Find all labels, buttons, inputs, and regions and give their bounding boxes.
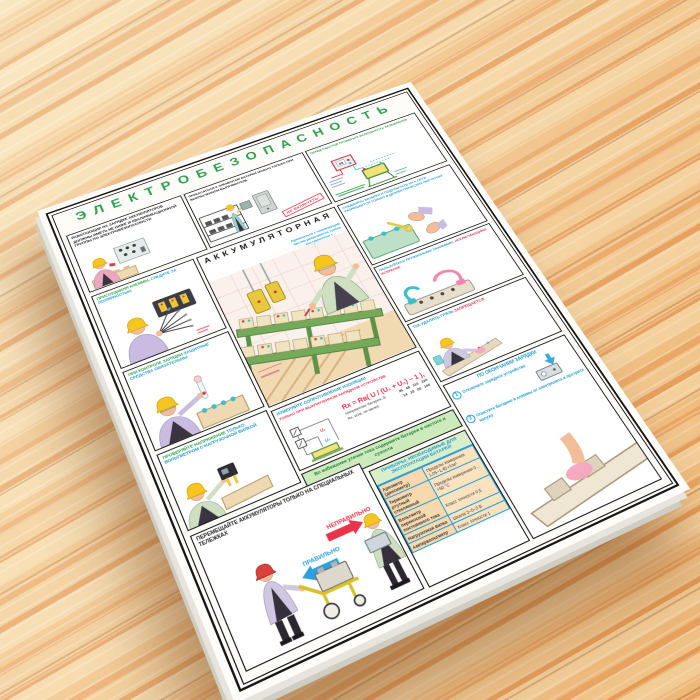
u2-label: U₂ — [324, 435, 332, 442]
worker-pushing-cart — [248, 553, 324, 647]
u1-label: U₁ — [319, 425, 327, 432]
photo-scene: ЭЛЕКТРОБЕЗОПАСНОСТЬ Работающие на зарядк… — [0, 0, 700, 700]
